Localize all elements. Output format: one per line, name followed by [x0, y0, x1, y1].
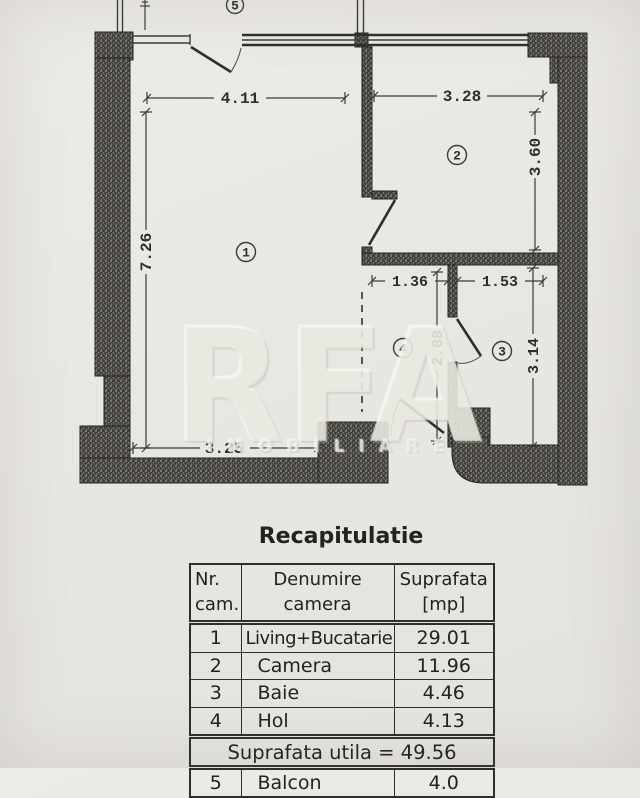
col-header-text: camera: [242, 593, 394, 617]
table-row: 3 Baie 4.46: [190, 680, 494, 708]
col-header-text: Suprafata: [395, 568, 494, 592]
dim-hol-width: 1.36: [368, 274, 452, 291]
room-marker-living: 1: [237, 243, 256, 262]
balcony-rails: [118, 0, 364, 33]
dimension-label: 3.28: [443, 88, 481, 106]
dim-camera-height: 3.60: [527, 108, 545, 254]
room-name: Living+Bucatarie: [241, 623, 394, 653]
table-row: 4 Hol 4.13: [190, 707, 494, 737]
dimension-label: 7.26: [138, 233, 156, 271]
room-number: 5: [231, 0, 239, 14]
col-header-text: [mp]: [395, 593, 494, 617]
recap-table: Nr. cam. Denumire camera Suprafata [mp] …: [189, 563, 495, 798]
table-row: 1 Living+Bucatarie 29.01: [190, 623, 494, 653]
table-row: 2 Camera 11.96: [190, 652, 494, 680]
dim-hol-height: 2.88: [430, 268, 447, 445]
room-nr: 3: [190, 680, 241, 708]
room-name: Hol: [241, 707, 394, 737]
col-header-nr: Nr. cam.: [190, 564, 241, 623]
col-header-suprafata: Suprafata [mp]: [394, 564, 494, 623]
room-number: 4: [399, 342, 407, 357]
clipped-dimension-mark: [140, 0, 150, 30]
room-name: Camera: [241, 652, 394, 680]
room-area: 4.46: [394, 680, 494, 708]
room-marker-balcon: 5: [227, 0, 244, 14]
room-marker-hol: 4: [394, 339, 413, 358]
room-number: 1: [242, 246, 250, 261]
room-nr: 5: [190, 768, 241, 798]
dim-camera-width: 3.28: [370, 88, 547, 106]
room-number: 2: [453, 149, 461, 164]
recap-title: Recapitulatie: [189, 524, 493, 549]
dimension-label: 4.11: [221, 90, 259, 108]
col-header-text: Nr.: [195, 568, 241, 592]
col-header-text: Denumire: [242, 568, 394, 592]
balcony-door: [191, 47, 241, 72]
dimension-label: 3.25: [205, 440, 243, 458]
dimension-label: 1.53: [482, 274, 518, 291]
room-name: Balcon: [241, 768, 394, 798]
dimension-label: 2.88: [430, 330, 447, 366]
room-number: 3: [498, 345, 506, 360]
room-area: 29.01: [394, 623, 494, 653]
room-nr: 1: [190, 623, 241, 653]
room-nr: 4: [190, 707, 241, 737]
summary-row: Suprafata utila = 49.56: [190, 737, 494, 768]
windows: [133, 34, 528, 45]
col-header-denumire: Denumire camera: [241, 564, 394, 623]
room-marker-baie: 3: [493, 342, 512, 361]
room-area: 11.96: [394, 652, 494, 680]
col-header-text: cam.: [195, 593, 241, 617]
dim-living-width: 4.11: [143, 90, 349, 108]
dim-living-height: 7.26: [138, 108, 156, 452]
room-area: 4.13: [394, 707, 494, 737]
living-camera-door: [369, 200, 395, 245]
dimension-label: 3.60: [527, 138, 545, 176]
walls: [80, 32, 587, 485]
room-marker-camera: 2: [448, 146, 467, 165]
room-name: Baie: [241, 680, 394, 708]
room-area: 4.0: [394, 768, 494, 798]
entry-door: [391, 399, 444, 436]
total-usable-area: Suprafata utila = 49.56: [190, 737, 494, 768]
floor-plan: 4.11 3.28 7.26 3.60 1.36 1.53 2.88: [0, 0, 640, 512]
dim-baie-height: 3.14: [526, 264, 543, 450]
room-nr: 2: [190, 652, 241, 680]
hol-baie-door: [457, 319, 481, 363]
dimension-label: 3.14: [526, 338, 543, 374]
dimension-label: 1.36: [392, 274, 428, 291]
recap-header-row: Nr. cam. Denumire camera Suprafata [mp]: [190, 564, 494, 623]
dim-living-bottom: 3.25: [129, 440, 322, 458]
scanned-floor-plan-page: { "colors": { "paper": "#e9e7e2", "ink":…: [0, 0, 640, 768]
table-row-clipped: 5 Balcon 4.0: [190, 768, 494, 798]
